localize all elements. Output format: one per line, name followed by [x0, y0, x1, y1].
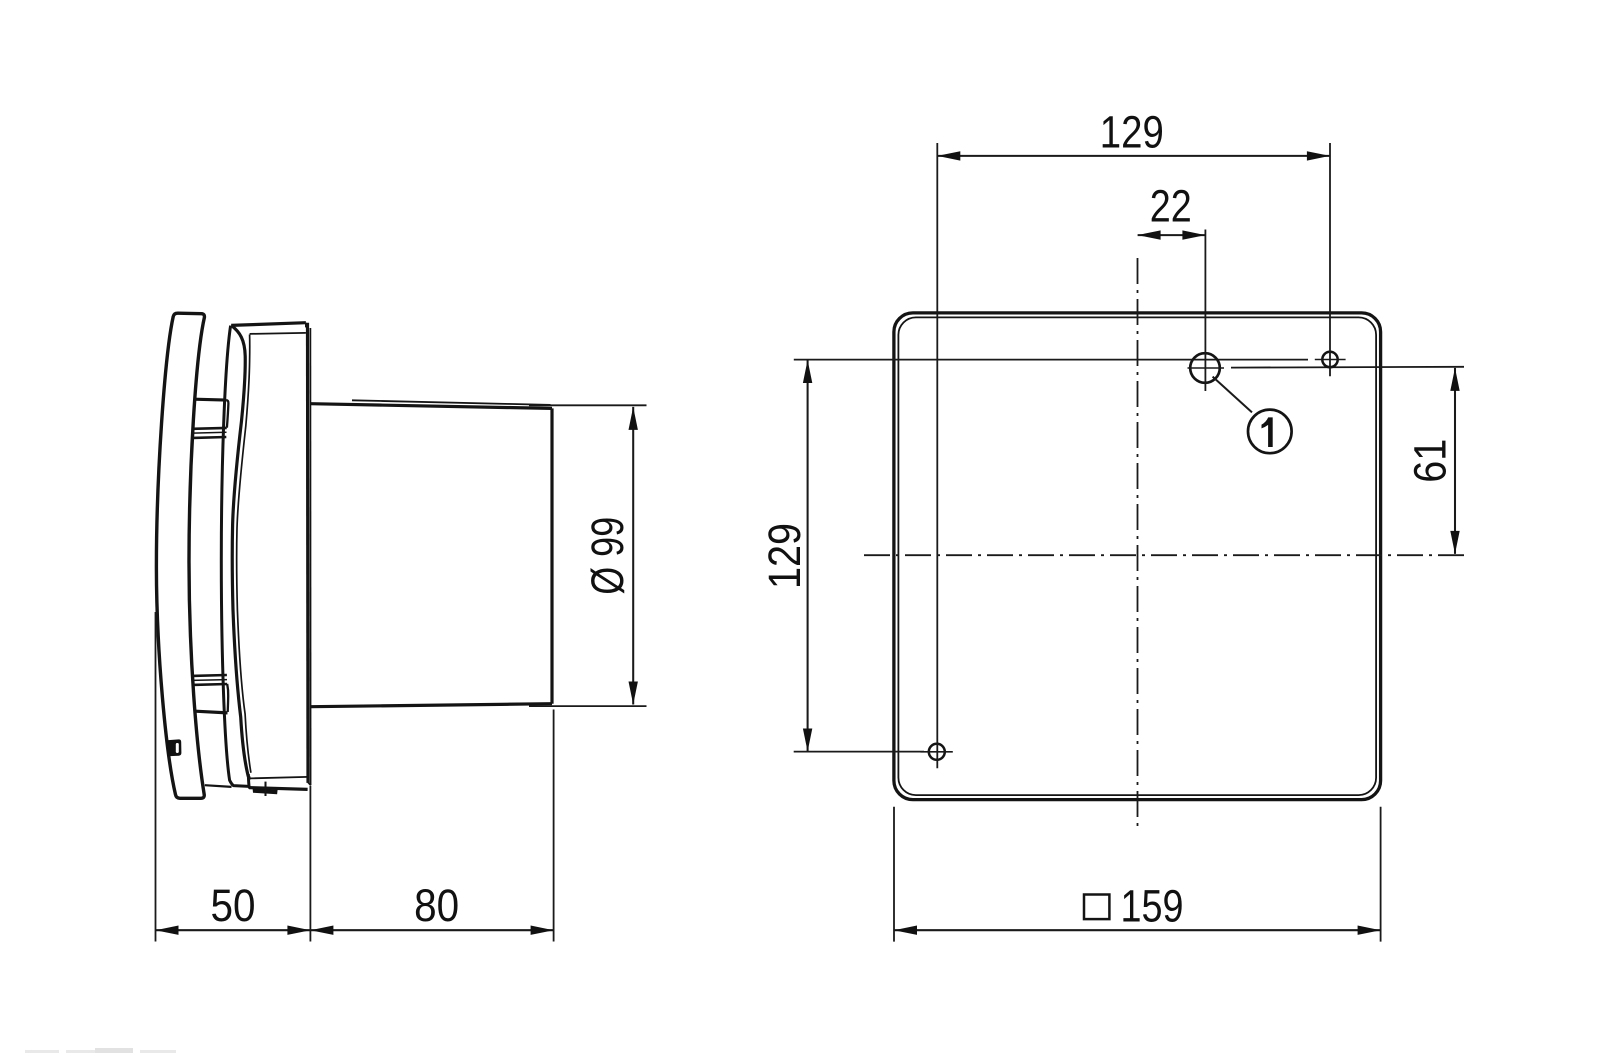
svg-text:Ø 99: Ø 99 — [582, 517, 633, 595]
svg-text:50: 50 — [211, 880, 256, 931]
svg-text:129: 129 — [1100, 107, 1164, 158]
svg-text:61: 61 — [1405, 439, 1456, 483]
svg-text:159: 159 — [1121, 881, 1184, 932]
svg-text:22: 22 — [1150, 181, 1192, 232]
svg-text:80: 80 — [414, 880, 459, 931]
svg-text:129: 129 — [759, 523, 810, 589]
